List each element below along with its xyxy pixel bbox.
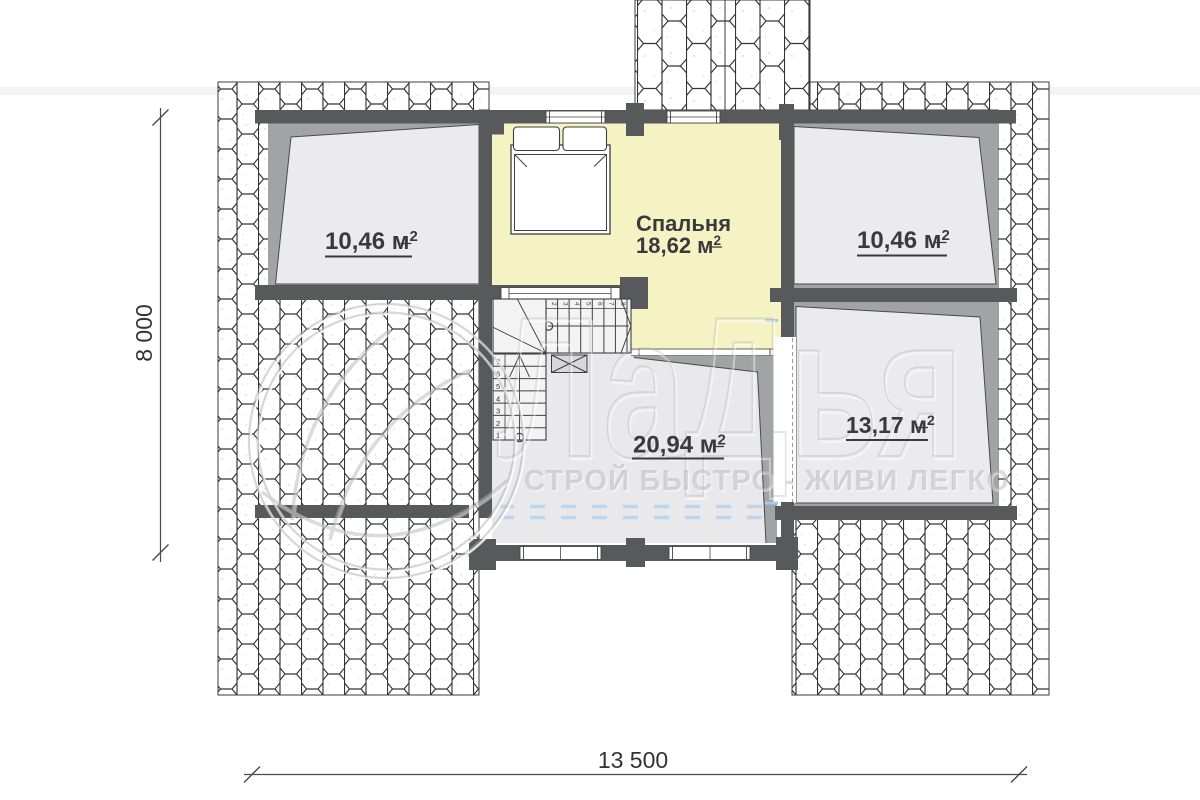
svg-text:СТРОЙ БЫСТРО - ЖИВИ ЛЕГКО: СТРОЙ БЫСТРО - ЖИВИ ЛЕГКО [524,463,1010,497]
svg-text:13 500: 13 500 [598,747,668,773]
svg-text:10,46 м2: 10,46 м2 [325,228,418,255]
svg-text:10,46 м2: 10,46 м2 [857,227,950,254]
svg-text:18,62 м2: 18,62 м2 [636,233,721,258]
svg-text:8 000: 8 000 [131,304,157,362]
svg-text:13,17 м2: 13,17 м2 [846,412,935,438]
svg-text:20,94 м2: 20,94 м2 [633,432,726,459]
